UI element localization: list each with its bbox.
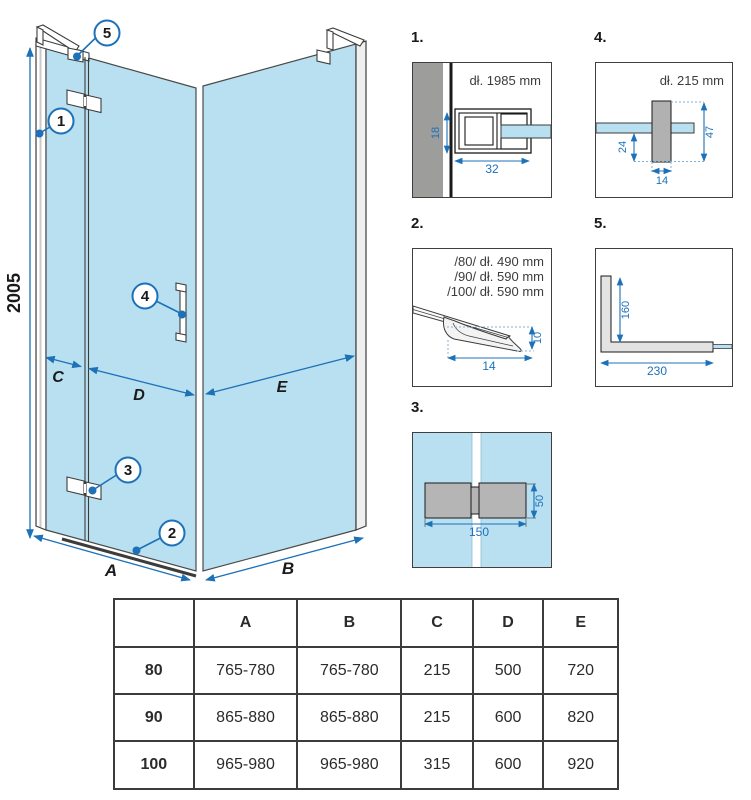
table-cell: 215 [401,647,473,694]
callout-3-number: 3 [124,462,132,479]
detail-box-5: 160 230 [595,248,733,387]
dim-e-label: E [277,379,289,396]
dim-d-label: D [133,387,145,404]
detail-3-drawing: 50 150 [413,433,551,567]
table-cell: 920 [543,741,618,789]
table-header-blank [114,599,194,647]
main-diagram: 2005 C D E A B 5 [0,0,400,600]
detail-5-dim-width: 230 [647,364,667,378]
detail-2-line-80: /80/ dł. 490 mm [454,254,544,269]
detail-3-title: 3. [411,399,424,416]
hinge-plates [425,483,526,518]
table-row-label: 80 [114,647,194,694]
table-row: 80 765-780 765-780 215 500 720 [114,647,618,694]
callout-5-number: 5 [103,25,111,42]
table-cell: 765-780 [194,647,298,694]
table-cell: 600 [473,694,544,741]
right-edge-profile [356,41,366,530]
table-header-e: E [543,599,618,647]
detail-2-title: 2. [411,215,424,232]
table-cell: 600 [473,741,544,789]
wall-profile-strip [36,42,46,530]
detail-4-length-label: dł. 215 mm [660,73,724,88]
detail-1-dim-depth: 18 [430,127,442,139]
handle-section [652,101,671,162]
table-cell: 215 [401,694,473,741]
detail-3-dim-height: 50 [534,495,546,507]
detail-2-dim-height: 10 [532,332,544,344]
detail-2-line-100: /100/ dł. 590 mm [447,284,544,299]
glass-edge [596,123,694,133]
detail-box-2: /80/ dł. 490 mm /90/ dł. 590 mm /100/ dł… [412,248,552,387]
table-header-row: A B C D E [114,599,618,647]
callout-2-number: 2 [168,525,176,542]
seal-profile [413,306,521,351]
table-row-label: 90 [114,694,194,741]
detail-4-title: 4. [594,29,607,46]
detail-1-title: 1. [411,29,424,46]
table-header-c: C [401,599,473,647]
detail-5-title: 5. [594,215,607,232]
dim-c-label: C [52,369,64,386]
table-header-a: A [194,599,298,647]
detail-4-dim-height: 47 [704,126,716,138]
wall-face-line [450,63,453,197]
detail-2-dim-width: 14 [482,359,496,373]
detail-1-length-label: dł. 1985 mm [469,73,541,88]
table-header-d: D [473,599,544,647]
detail-4-dim-width: 14 [656,175,668,187]
size-table: A B C D E 80 765-780 765-780 215 500 720… [113,598,619,790]
table-cell: 765-780 [297,647,401,694]
technical-drawing-page: 2005 C D E A B 5 [0,0,751,800]
dim-a-label: A [104,561,117,580]
detail-5-dim-height: 160 [620,301,632,319]
stabilizer-bar-profile [601,276,713,352]
table-cell: 865-880 [297,694,401,741]
table-row-label: 100 [114,741,194,789]
detail-4-dim-offset: 24 [617,141,629,153]
detail-2-line-90: /90/ dł. 590 mm [454,269,544,284]
right-glass-panel [203,44,356,571]
detail-box-3: 50 150 [412,432,552,568]
detail-1-drawing: dł. 1985 mm 18 32 [413,63,551,197]
table-cell: 820 [543,694,618,741]
detail-box-1: dł. 1985 mm 18 32 [412,62,552,198]
table-cell: 865-880 [194,694,298,741]
table-cell: 500 [473,647,544,694]
table-row: 90 865-880 865-880 215 600 820 [114,694,618,741]
glass-edge [501,125,551,138]
table-cell: 720 [543,647,618,694]
detail-1-dim-width: 32 [485,162,499,176]
table-row: 100 965-980 965-980 315 600 920 [114,741,618,789]
table-cell: 315 [401,741,473,789]
detail-4-drawing: dł. 215 mm 47 24 14 [596,63,732,197]
dim-height-label: 2005 [4,273,24,313]
callout-4-number: 4 [141,288,150,305]
table-cell: 965-980 [297,741,401,789]
detail-3-dim-width: 150 [469,525,489,539]
dim-b-label: B [282,559,294,578]
detail-box-4: dł. 215 mm 47 24 14 [595,62,733,198]
callout-1-number: 1 [57,113,65,130]
detail-5-drawing: 160 230 [596,249,732,386]
glass-edge [713,345,732,349]
table-cell: 965-980 [194,741,298,789]
detail-2-drawing: /80/ dł. 490 mm /90/ dł. 590 mm /100/ dł… [413,249,551,386]
table-header-b: B [297,599,401,647]
dim-height: 2005 [4,48,30,538]
callout-5: 5 [73,21,120,61]
